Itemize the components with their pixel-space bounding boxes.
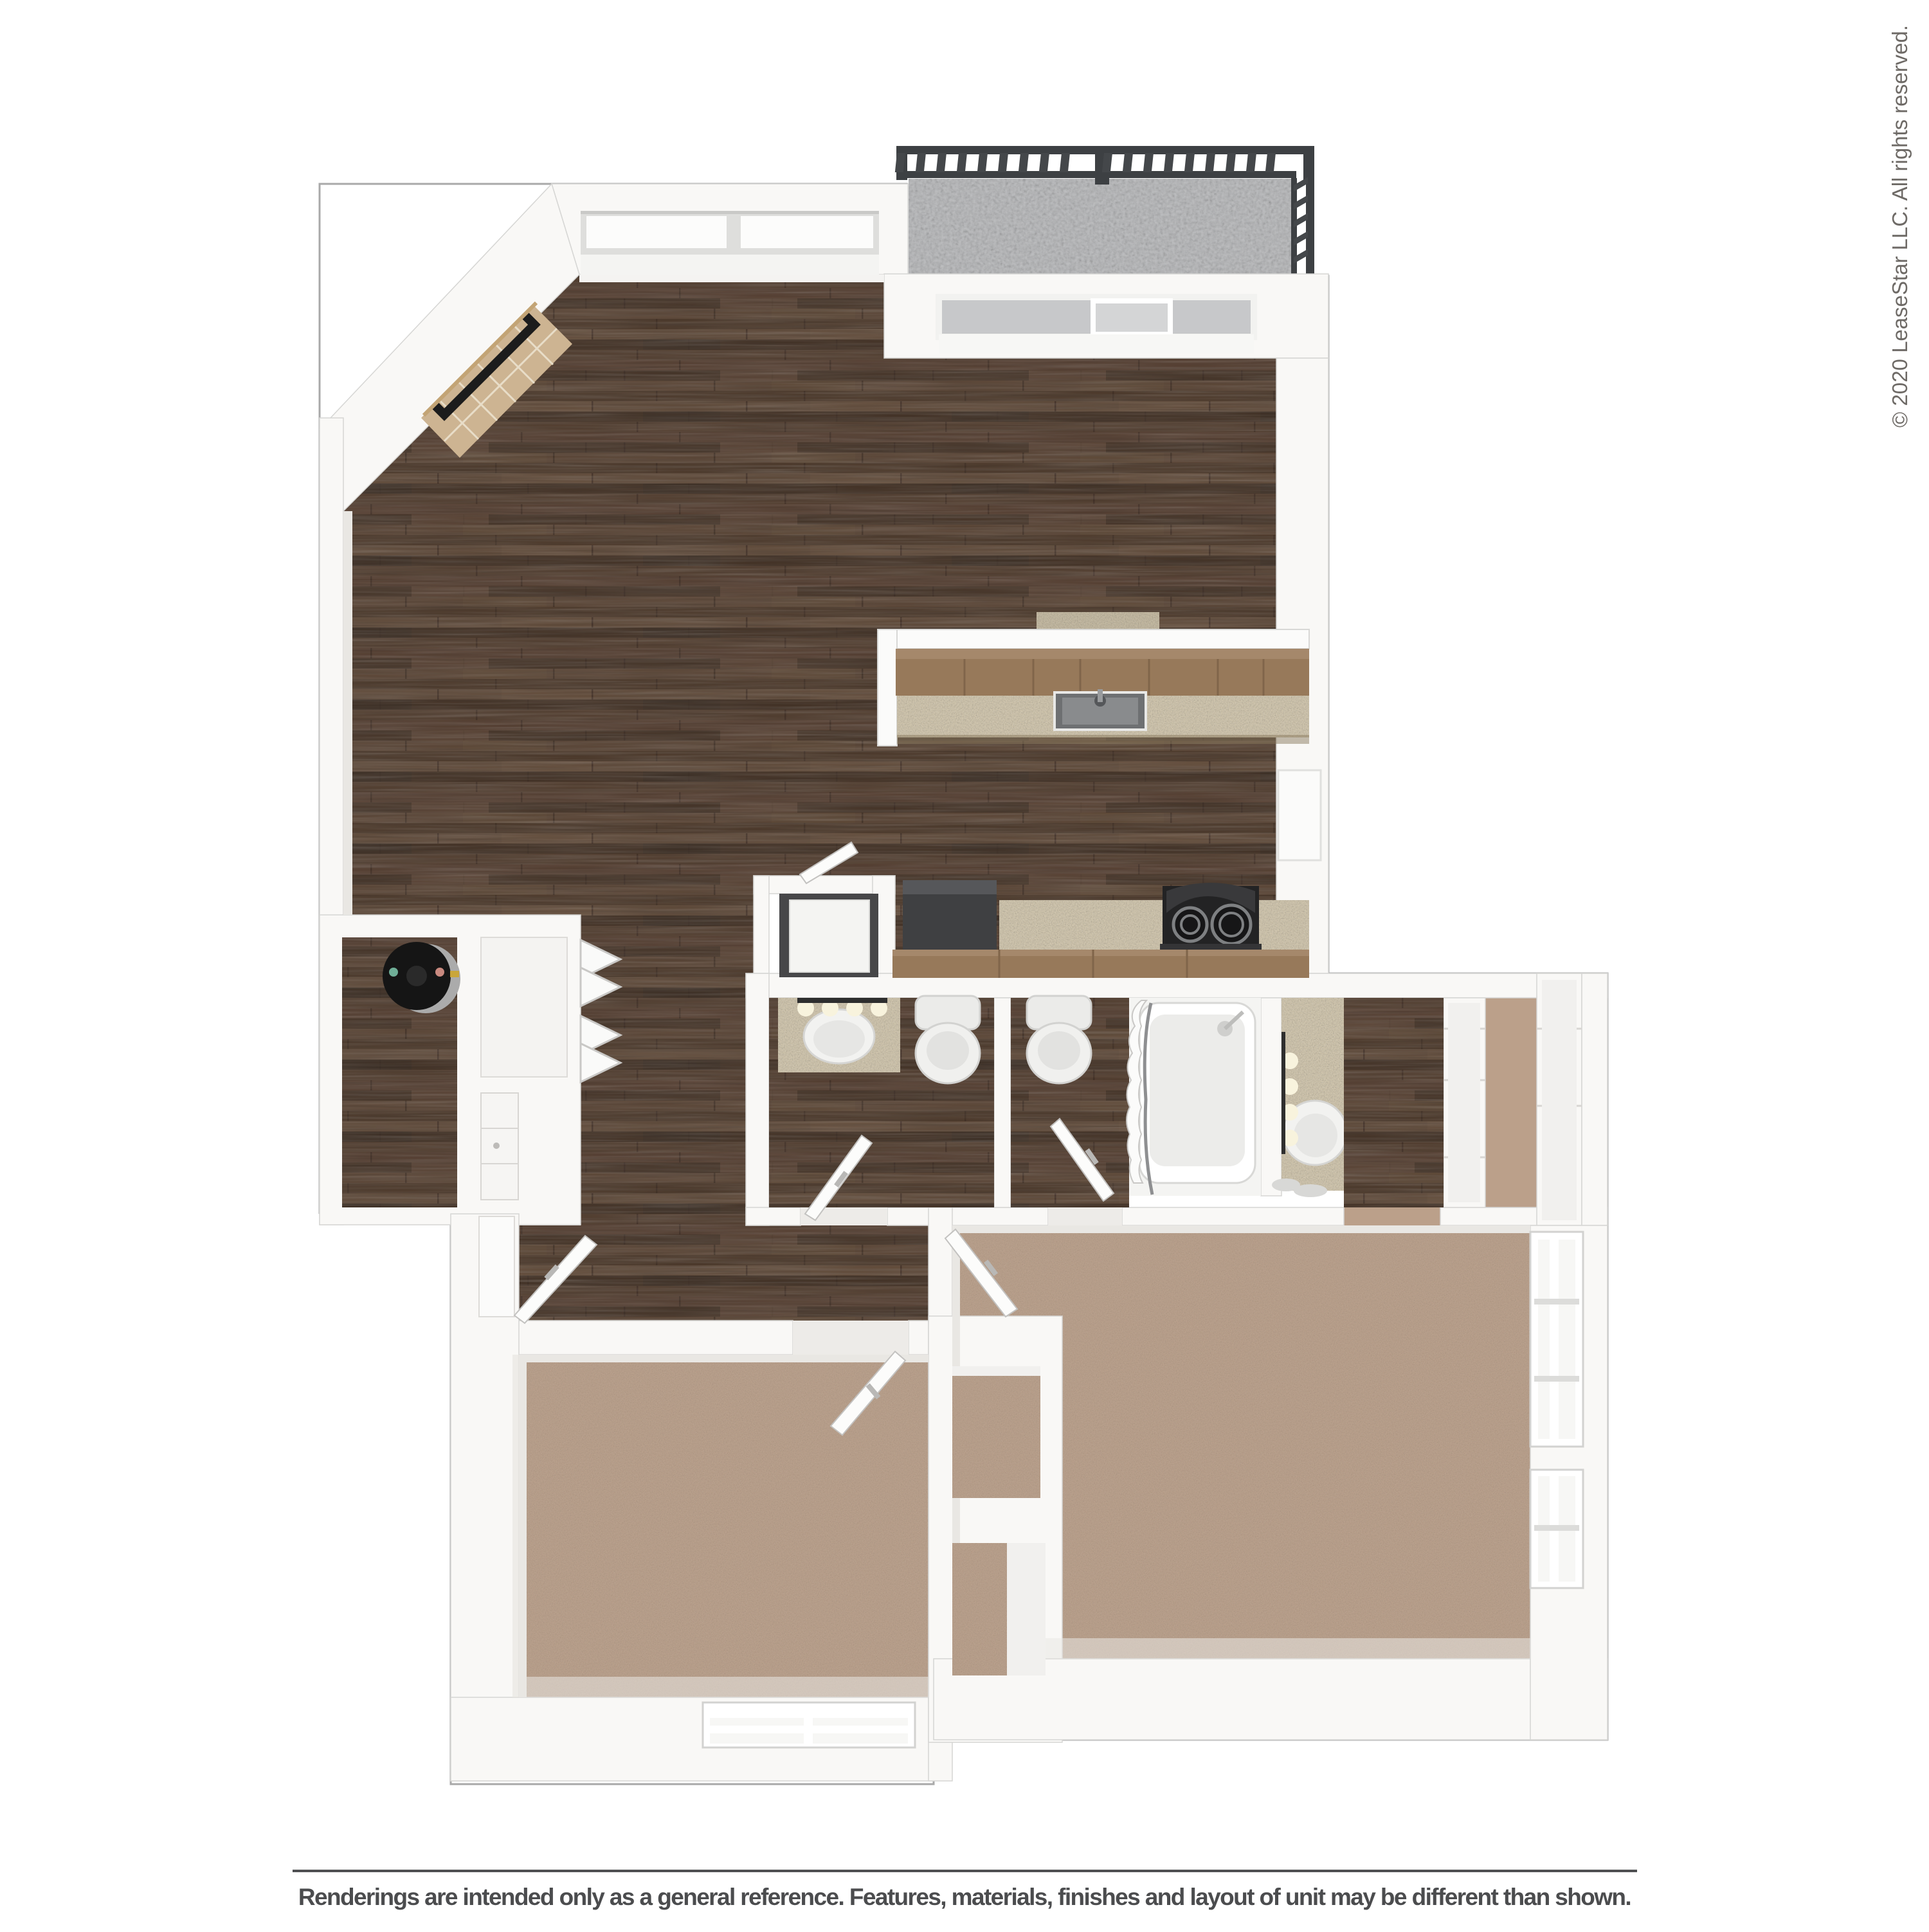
svg-text:Renderings are intended only a: Renderings are intended only as a genera… bbox=[298, 1884, 1631, 1910]
svg-text:© 2020 LeaseStar LLC. All righ: © 2020 LeaseStar LLC. All rights reserve… bbox=[1888, 25, 1912, 428]
